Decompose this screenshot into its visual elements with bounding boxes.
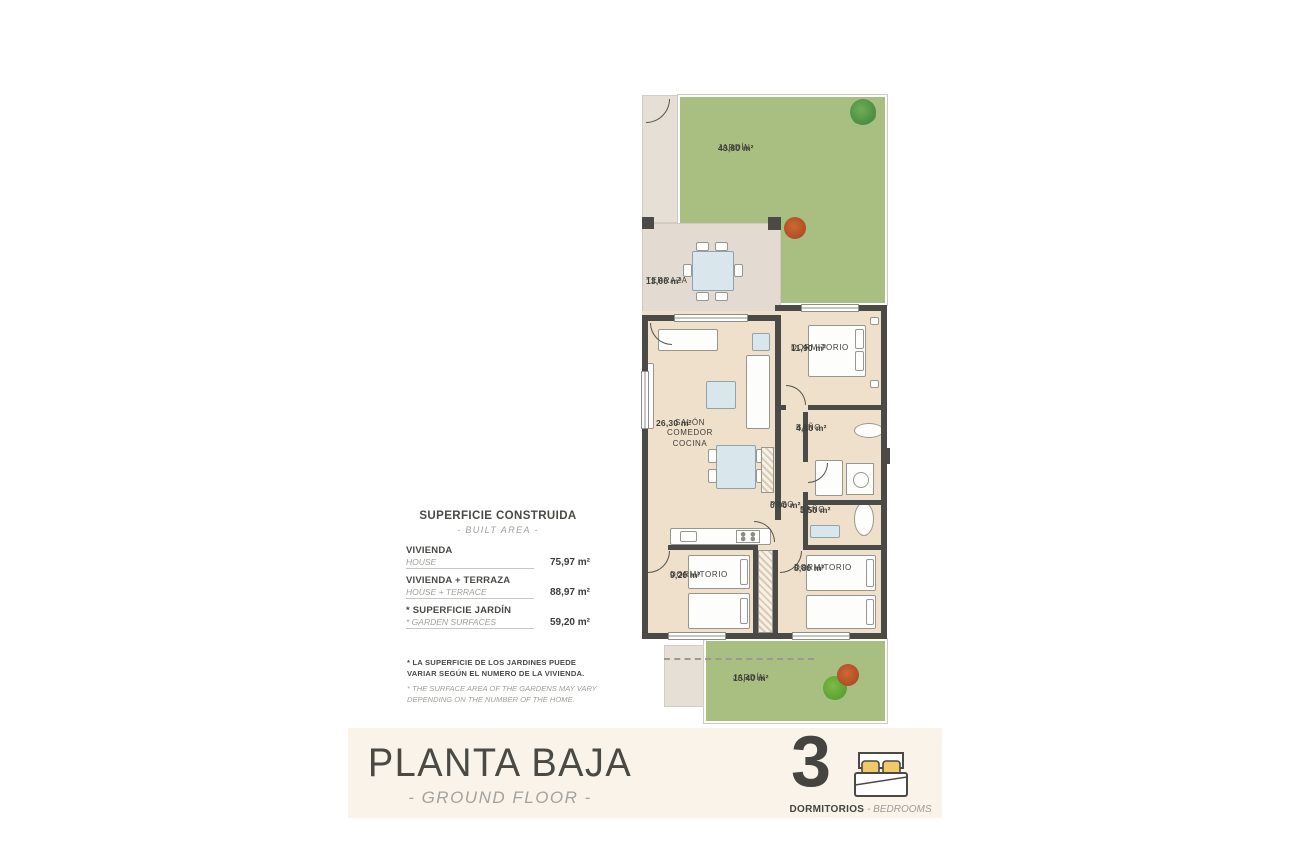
terrace-chair: [696, 242, 709, 251]
pillow: [866, 559, 874, 587]
page-subtitle: - GROUND FLOOR -: [360, 788, 640, 808]
terrace-chair: [734, 264, 743, 277]
built-area-legend: SUPERFICIE CONSTRUIDA - BUILT AREA - VIV…: [406, 510, 590, 635]
tree-icon: [784, 217, 806, 239]
legend-row: VIVIENDA + TERRAZA HOUSE + TERRACE 88,97…: [406, 575, 590, 599]
legend-label-es: VIVIENDA: [406, 545, 534, 556]
wall-bedroom-divider: [753, 550, 758, 633]
terrace-pillar: [642, 217, 654, 229]
nightstand: [870, 380, 879, 388]
terrace-dining-table: [692, 251, 734, 291]
pillow: [740, 559, 748, 585]
window-bedroom1: [801, 304, 859, 312]
sofa-chaise: [746, 355, 770, 429]
wall-paso-right: [803, 412, 808, 462]
terrace-chair: [715, 242, 728, 251]
bedrooms-count: 3: [791, 726, 831, 798]
legend-rows: VIVIENDA HOUSE 75,97 m² VIVIENDA + TERRA…: [406, 545, 590, 629]
legend-row-labels: VIVIENDA + TERRAZA HOUSE + TERRACE: [406, 575, 534, 599]
page: JARDÍN 43,80 m² TERRAZA 13,00 m² SALÓN C…: [0, 0, 1290, 850]
window-bedroom3: [792, 632, 850, 640]
tree-icon: [850, 99, 876, 125]
pillow: [855, 351, 864, 371]
legend-subtitle: - BUILT AREA -: [406, 525, 590, 535]
dining-table: [716, 445, 756, 489]
room-area: 4,10 m²: [796, 423, 827, 434]
room-area: 3,50 m²: [800, 505, 831, 516]
nightstand: [870, 317, 879, 325]
wall-pilaster: [881, 448, 890, 464]
legend-label-es: * SUPERFICIE JARDÍN: [406, 605, 534, 616]
note-en: * THE SURFACE AREA OF THE GARDENS MAY VA…: [407, 683, 605, 706]
note-es: * LA SUPERFICIE DE LOS JARDINES PUEDE VA…: [407, 657, 605, 680]
hall-wardrobe: [761, 447, 774, 493]
bathroom-sink: [854, 423, 884, 438]
room-area: 26,30 m²: [656, 418, 692, 429]
side-table: [752, 333, 770, 351]
wall-kitchen-bedroom2: [668, 545, 758, 550]
legend-row-labels: VIVIENDA HOUSE: [406, 545, 534, 569]
legend-value: 59,20 m²: [534, 617, 590, 629]
room-area: 43,80 m²: [718, 143, 754, 154]
pillow: [740, 598, 748, 624]
legend-label-en: HOUSE + TERRACE: [406, 587, 534, 597]
bedrooms-caption-es: DORMITORIOS: [789, 804, 864, 815]
legend-value: 88,97 m²: [534, 587, 590, 599]
window-living-side: [641, 371, 649, 429]
legend-row-labels: * SUPERFICIE JARDÍN * GARDEN SURFACES: [406, 605, 534, 629]
footer-title-block: PLANTA BAJA - GROUND FLOOR -: [360, 742, 640, 808]
dining-chair: [708, 469, 717, 483]
legend-value: 75,97 m²: [534, 557, 590, 569]
room-area: 11,90 m²: [791, 343, 826, 354]
legend-title: SUPERFICIE CONSTRUIDA: [406, 510, 590, 522]
dining-chair: [708, 449, 717, 463]
footer-band: PLANTA BAJA - GROUND FLOOR - 3 DORMITORI…: [348, 728, 942, 818]
window-bedroom2: [668, 632, 726, 640]
page-title: PLANTA BAJA: [367, 742, 633, 784]
wall-living-divider: [775, 315, 781, 520]
garden-bottom-area: [704, 639, 887, 723]
washing-machine: [846, 463, 874, 495]
room-area: 13,00 m²: [646, 276, 682, 287]
pillow: [866, 599, 874, 625]
floor-plan: JARDÍN 43,80 m² TERRAZA 13,00 m² SALÓN C…: [628, 93, 890, 728]
pillow: [855, 329, 864, 349]
garden-boundary-dashed-line: [664, 658, 814, 660]
bedrooms-block: 3 DORMITORIOS - BEDROOMS: [783, 732, 938, 816]
wall-bedroom-divider: [773, 550, 778, 633]
terrace-pillar: [768, 217, 781, 230]
terrace-chair: [696, 292, 709, 301]
toilet: [854, 502, 874, 536]
legend-row: VIVIENDA HOUSE 75,97 m²: [406, 545, 590, 569]
wall-bedroom1-bath: [778, 405, 786, 410]
bottom-path: [664, 645, 704, 707]
bedrooms-caption-en: - BEDROOMS: [867, 804, 931, 815]
wall-right: [881, 305, 887, 639]
room-area: 8,80 m²: [794, 563, 825, 574]
legend-label-en: * GARDEN SURFACES: [406, 617, 534, 627]
legend-label-en: HOUSE: [406, 557, 534, 567]
kitchen-sink: [680, 531, 697, 542]
window-living: [674, 314, 748, 322]
bed-icon: [845, 752, 915, 807]
wall-left: [642, 315, 648, 639]
room-area: 0,90 m²: [770, 500, 801, 511]
coffee-table: [706, 381, 736, 409]
room-area: 9,20 m²: [670, 570, 701, 581]
bedrooms-caption: DORMITORIOS - BEDROOMS: [783, 804, 938, 815]
legend-row: * SUPERFICIE JARDÍN * GARDEN SURFACES 59…: [406, 605, 590, 629]
bathroom-sink: [810, 525, 840, 538]
wall-bedroom1-bath: [808, 405, 887, 410]
room-area: 15,40 m²: [733, 673, 769, 684]
tree-icon: [837, 664, 859, 686]
bedroom-wardrobe: [758, 550, 773, 633]
terrace-chair: [715, 292, 728, 301]
wall-bedroom3-top: [803, 545, 887, 550]
disclaimer-note: * LA SUPERFICIE DE LOS JARDINES PUEDE VA…: [407, 657, 605, 706]
legend-label-es: VIVIENDA + TERRAZA: [406, 575, 534, 586]
